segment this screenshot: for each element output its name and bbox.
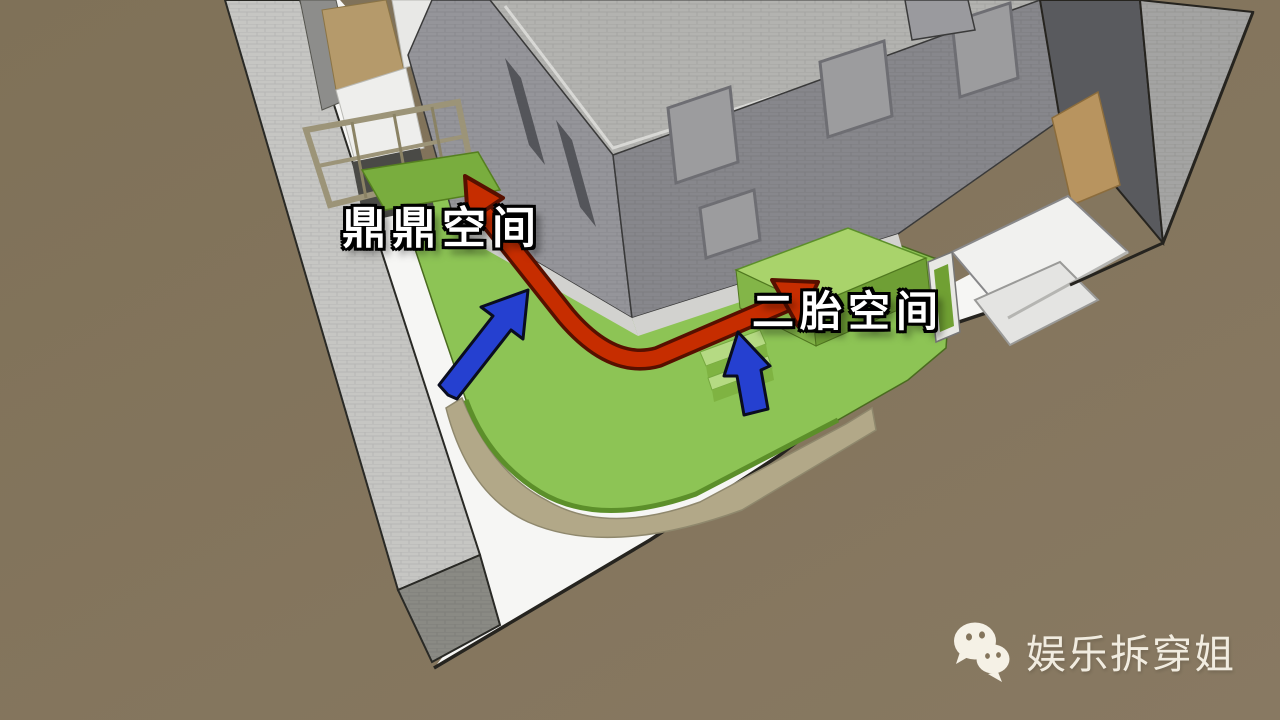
label-ertai-space: 二胎空间 bbox=[752, 278, 944, 339]
wechat-icon bbox=[946, 618, 1016, 684]
screenshot-root: 鼎鼎空间 二胎空间 娱乐拆穿姐 bbox=[0, 0, 1280, 720]
watermark: 娱乐拆穿姐 bbox=[946, 618, 1236, 684]
3d-building-rendering bbox=[0, 0, 1280, 720]
watermark-text: 娱乐拆穿姐 bbox=[1026, 622, 1236, 680]
label-dingding-space: 鼎鼎空间 bbox=[342, 192, 542, 256]
